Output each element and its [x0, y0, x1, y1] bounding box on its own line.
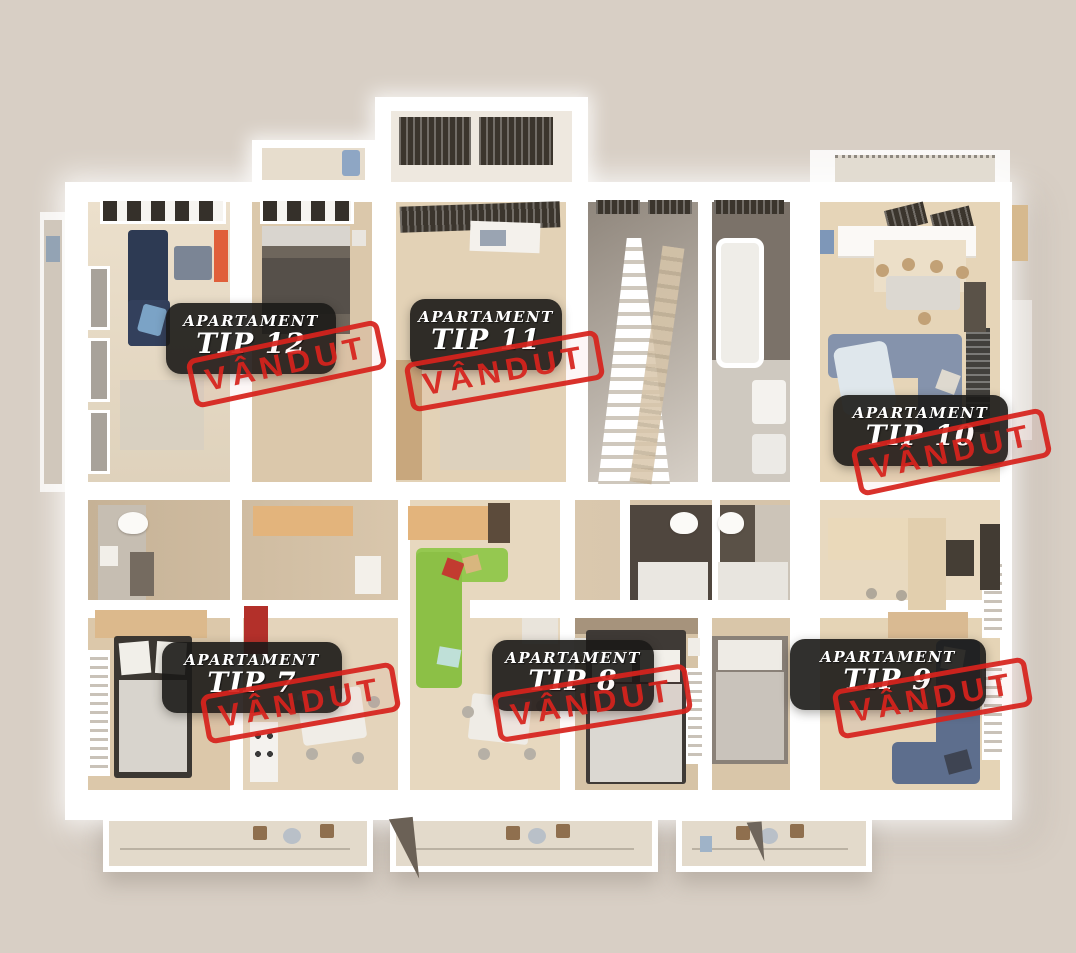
chair [876, 264, 889, 277]
apartment-marker-tip-9[interactable]: APARTAMENT TIP 9 VÂNDUT [790, 639, 986, 710]
fridge [980, 524, 1000, 590]
apartment-marker-tip-11[interactable]: APARTAMENT TIP 11 VÂNDUT [410, 299, 562, 370]
pillow [437, 646, 462, 668]
bathtub [716, 238, 764, 368]
balcony-railing [406, 848, 634, 850]
window-slats-icon [260, 198, 354, 224]
glass-balcony-floor [835, 155, 995, 184]
bed-pillows [718, 640, 782, 670]
balcony-table [283, 828, 301, 844]
window-grill-icon [596, 200, 640, 214]
toilet-icon [118, 512, 148, 534]
sideboard [888, 612, 968, 638]
apartment-marker-tip-12[interactable]: APARTAMENT TIP 12 VÂNDUT [166, 303, 336, 374]
window-grill-icon [479, 117, 553, 165]
floor-plan-scene: APARTAMENT TIP 12 VÂNDUT APARTAMENT TIP … [0, 0, 1076, 953]
oven [946, 540, 974, 576]
bed-duvet [716, 672, 784, 760]
sink [752, 380, 786, 424]
balcony-chair [556, 824, 570, 838]
wall [698, 200, 712, 482]
headboard [95, 610, 207, 638]
balcony-chair [506, 826, 520, 840]
chair [306, 748, 318, 760]
chair [902, 258, 915, 271]
bed-pillows [262, 226, 350, 246]
balcony-table [528, 828, 546, 844]
window-panel-icon [88, 338, 110, 402]
wall [230, 500, 242, 600]
side-shelf [1012, 205, 1028, 261]
toilet-icon [670, 512, 698, 534]
window-grill-icon [648, 200, 692, 214]
balcony-chair [253, 826, 267, 840]
balcony-furniture [342, 150, 360, 176]
balcony-railing [120, 848, 350, 850]
chair [524, 748, 536, 760]
toilet-icon [718, 512, 744, 534]
kitchen-island [355, 556, 381, 594]
wall [620, 500, 630, 600]
accent-cabinet [214, 230, 228, 282]
wall [560, 500, 575, 600]
balcony-plant [700, 836, 712, 852]
window-grill-icon [714, 200, 784, 214]
apartment-marker-tip-10[interactable]: APARTAMENT TIP 10 VÂNDUT [833, 395, 1008, 466]
wall [790, 500, 820, 610]
window-slats-icon [88, 650, 110, 776]
wall [790, 200, 820, 482]
kitchen-counter [908, 518, 946, 610]
window-panel-icon [88, 266, 110, 330]
chair [956, 266, 969, 279]
balcony-chair [320, 824, 334, 838]
nightstand [352, 230, 366, 246]
apartment-marker-tip-8[interactable]: APARTAMENT TIP 8 VÂNDUT [492, 640, 654, 711]
ottoman [174, 246, 212, 280]
apartment-marker-tip-7[interactable]: APARTAMENT TIP 7 VÂNDUT [162, 642, 342, 713]
shower-tray [718, 562, 788, 600]
dining-table [886, 276, 960, 310]
wall [65, 790, 1012, 820]
balcony-furniture [46, 236, 60, 262]
kitchen-item [820, 230, 834, 254]
window-slats-icon [100, 198, 226, 224]
bed-pillow [119, 641, 152, 675]
nightstand [688, 638, 700, 656]
roof-shadow [747, 822, 765, 863]
balcony-railing [692, 848, 848, 850]
chair [896, 590, 907, 601]
shower-tray [638, 562, 708, 600]
desk-item [480, 230, 506, 246]
sink [100, 546, 118, 566]
chair [918, 312, 931, 325]
washer [752, 434, 786, 474]
balcony [390, 815, 658, 872]
chair [462, 706, 474, 718]
kitchen-column [488, 503, 510, 543]
shelf-unit [964, 282, 986, 332]
kitchen-counter [253, 506, 353, 536]
window-grill-icon [399, 117, 471, 165]
chair [352, 752, 364, 764]
window-panel-icon [88, 410, 110, 474]
chair [930, 260, 943, 273]
balcony-chair [790, 824, 804, 838]
chair [478, 748, 490, 760]
shower-tile [130, 552, 154, 596]
chair [866, 588, 877, 599]
wall [65, 182, 88, 820]
